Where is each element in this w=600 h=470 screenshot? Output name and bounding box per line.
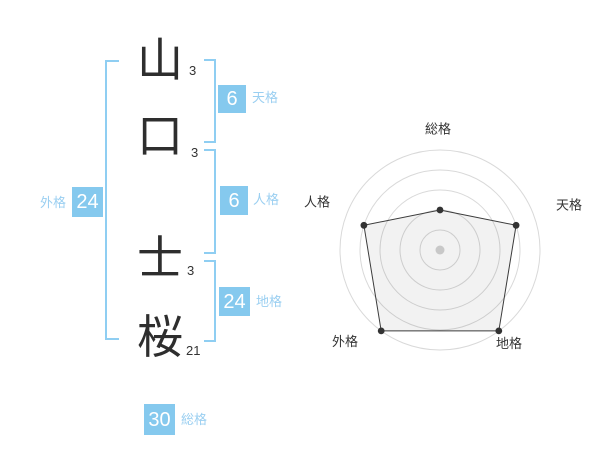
gaikaku-score-label: 外格 (40, 195, 66, 211)
name-char-2: 口 (136, 113, 184, 159)
radar-polygon (364, 210, 516, 331)
stroke-count-3: 3 (187, 264, 194, 277)
radar-axis-label-gaikaku: 外格 (332, 334, 358, 349)
jinkaku-score-badge: 6 (220, 186, 248, 215)
name-char-3: 士 (136, 235, 184, 281)
tenkaku-score-badge: 6 (218, 85, 246, 113)
stroke-count-4: 21 (186, 344, 200, 357)
radar-axis-label-soukaku: 総格 (425, 122, 451, 137)
tenkaku-score-label: 天格 (252, 90, 278, 106)
jinkaku-bracket (204, 149, 216, 254)
radar-axis-label-jinkaku: 人格 (304, 195, 330, 210)
soukaku-score-label: 総格 (181, 412, 207, 428)
radar-vertex-dot (437, 207, 444, 214)
stroke-count-2: 3 (191, 146, 198, 159)
radar-series (361, 207, 520, 335)
radar-vertex-dot (361, 222, 368, 229)
soukaku-score-badge: 30 (144, 404, 175, 435)
radar-axis-label-chikaku: 地格 (496, 336, 522, 351)
jinkaku-score-label: 人格 (253, 192, 279, 208)
radar-center-dot (436, 246, 445, 255)
radar-axis-label-tenkaku: 天格 (556, 198, 582, 213)
name-char-4: 桜 (136, 314, 184, 360)
radar-chart: 総格 天格 地格 外格 人格 (290, 100, 590, 370)
stroke-count-1: 3 (189, 64, 196, 77)
radar-vertex-dot (378, 328, 385, 335)
tenkaku-bracket (204, 59, 216, 143)
name-char-1: 山 (136, 37, 184, 83)
radar-vertex-dot (495, 328, 502, 335)
chikaku-bracket (204, 260, 216, 342)
chikaku-score-badge: 24 (219, 287, 250, 316)
chikaku-score-label: 地格 (256, 294, 282, 310)
gaikaku-score-badge: 24 (72, 187, 103, 217)
radar-vertex-dot (513, 222, 520, 229)
gaikaku-bracket (105, 60, 119, 340)
name-analysis-panel: 山 口 士 桜 3 3 3 21 6 天格 6 人格 24 地格 外格 24 3… (0, 0, 600, 470)
